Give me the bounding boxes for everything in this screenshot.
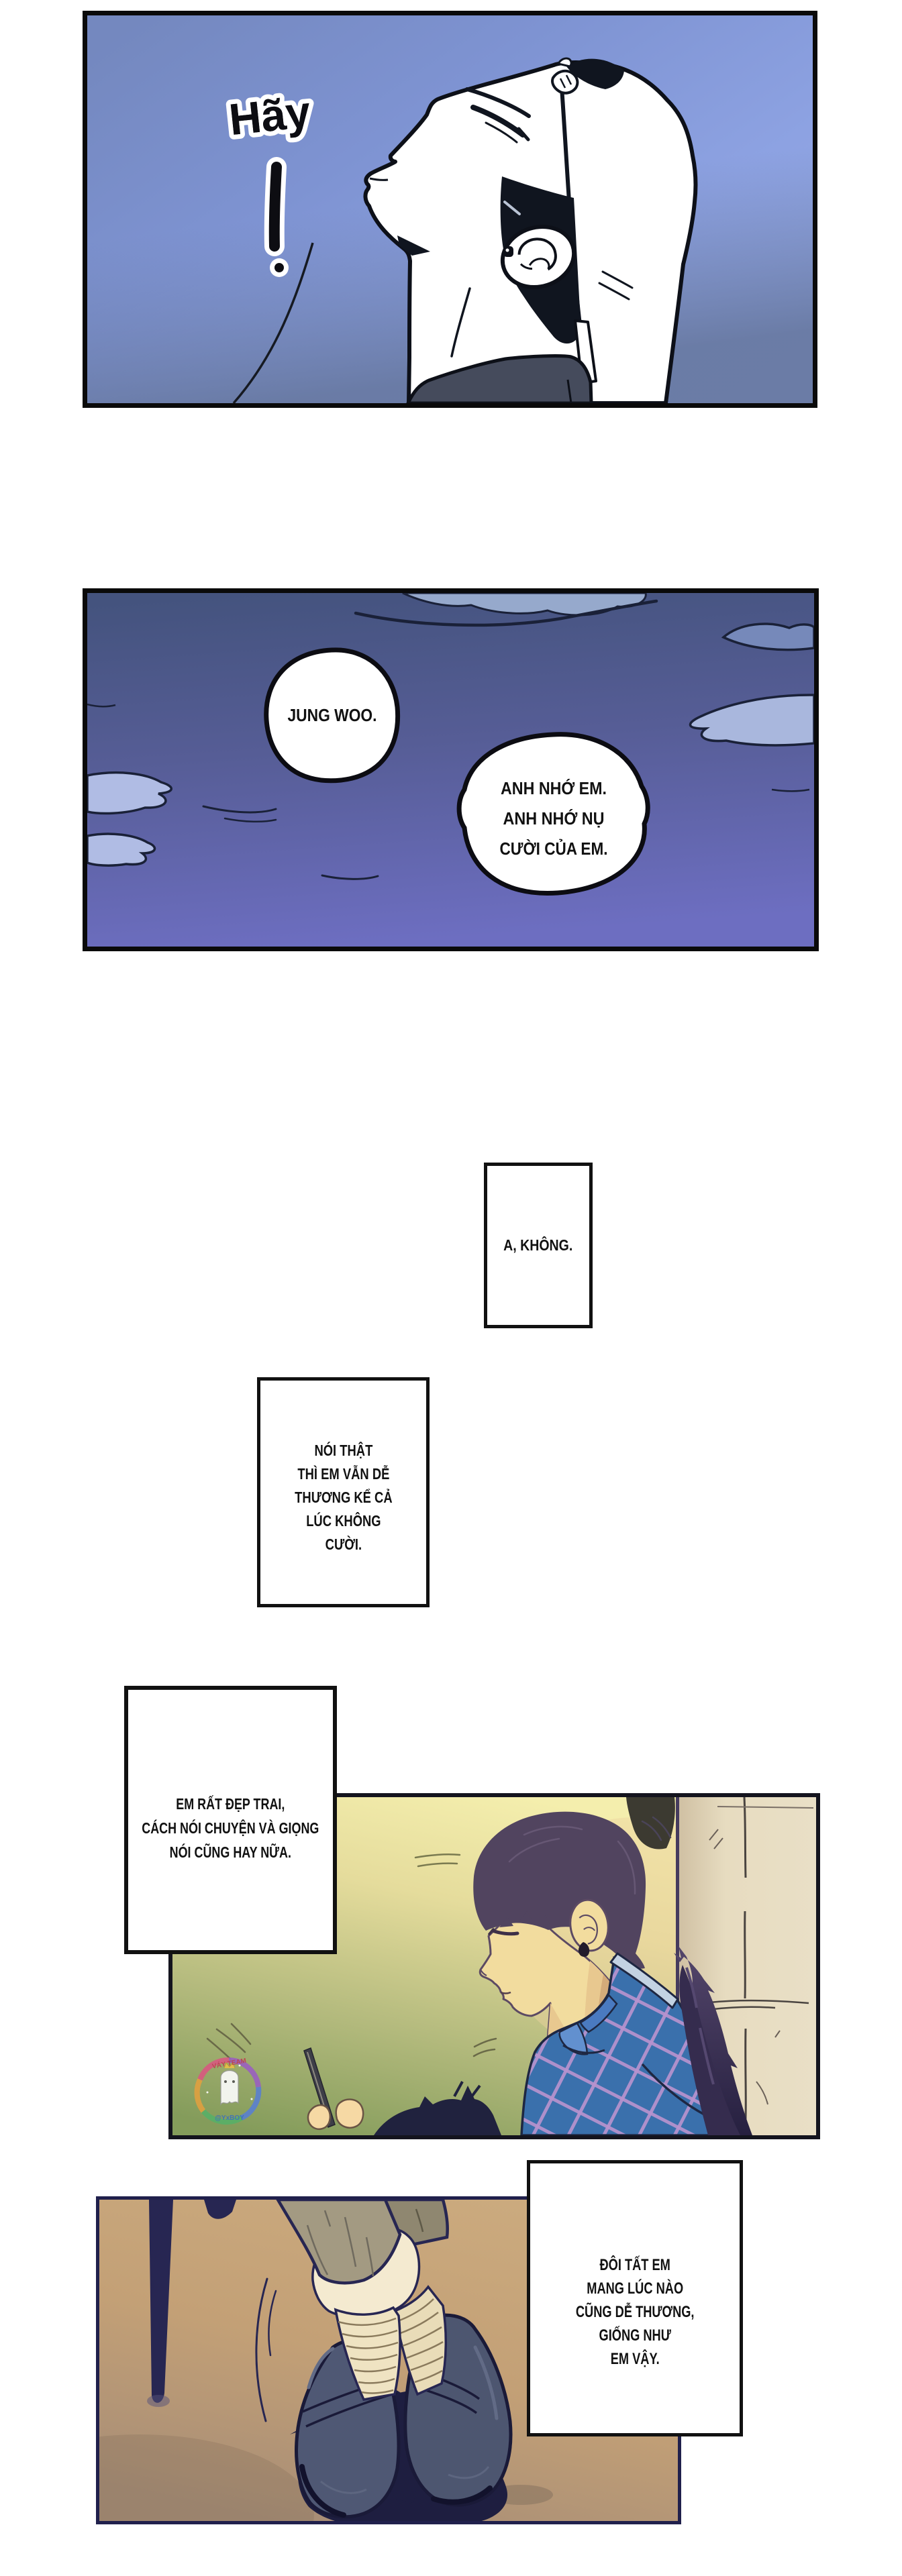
svg-text:JUNG WOO.: JUNG WOO. — [288, 705, 377, 725]
svg-text:CƯỜI CỦA EM.: CƯỜI CỦA EM. — [500, 838, 608, 859]
svg-text:ANH NHỚ EM.: ANH NHỚ EM. — [501, 778, 607, 798]
svg-text:ANH NHỚ NỤ: ANH NHỚ NỤ — [503, 808, 605, 828]
svg-text:Hãy: Hãy — [227, 87, 313, 144]
svg-text:@YxBOY: @YxBOY — [215, 2114, 244, 2122]
